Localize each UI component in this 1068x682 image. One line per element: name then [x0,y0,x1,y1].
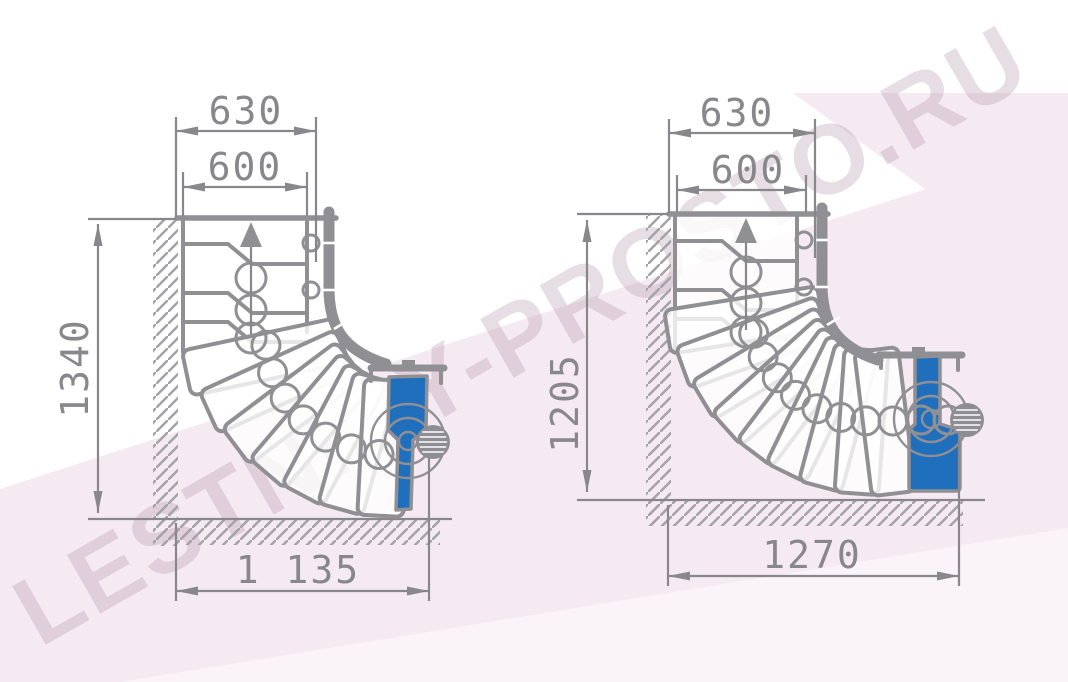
floor-hatch [153,519,440,545]
dim-label-right-top-inner: 600 [711,148,786,192]
dim-label-right-top-outer: 630 [700,91,775,135]
staircase-plans-canvas: LESTNICY-PROSTO.RU 630 600 1340 1 135 63… [0,0,1068,682]
wall-hatch [646,214,671,526]
wall-hatch [153,218,178,546]
bracket-notch [912,347,925,356]
dim-label-right-bottom: 1270 [762,533,862,577]
dim-label-left-top-inner: 600 [208,145,283,189]
dim-label-left-side: 1340 [53,318,97,418]
dim-label-left-bottom: 1 135 [236,548,360,592]
bracket-notch [402,360,415,369]
staircase-drawing-page: LESTNICY-PROSTO.RU 630 600 1340 1 135 63… [0,0,1068,682]
dim-label-right-side: 1205 [543,353,587,453]
floor-hatch [646,500,963,526]
dim-label-left-top-outer: 630 [209,89,284,133]
